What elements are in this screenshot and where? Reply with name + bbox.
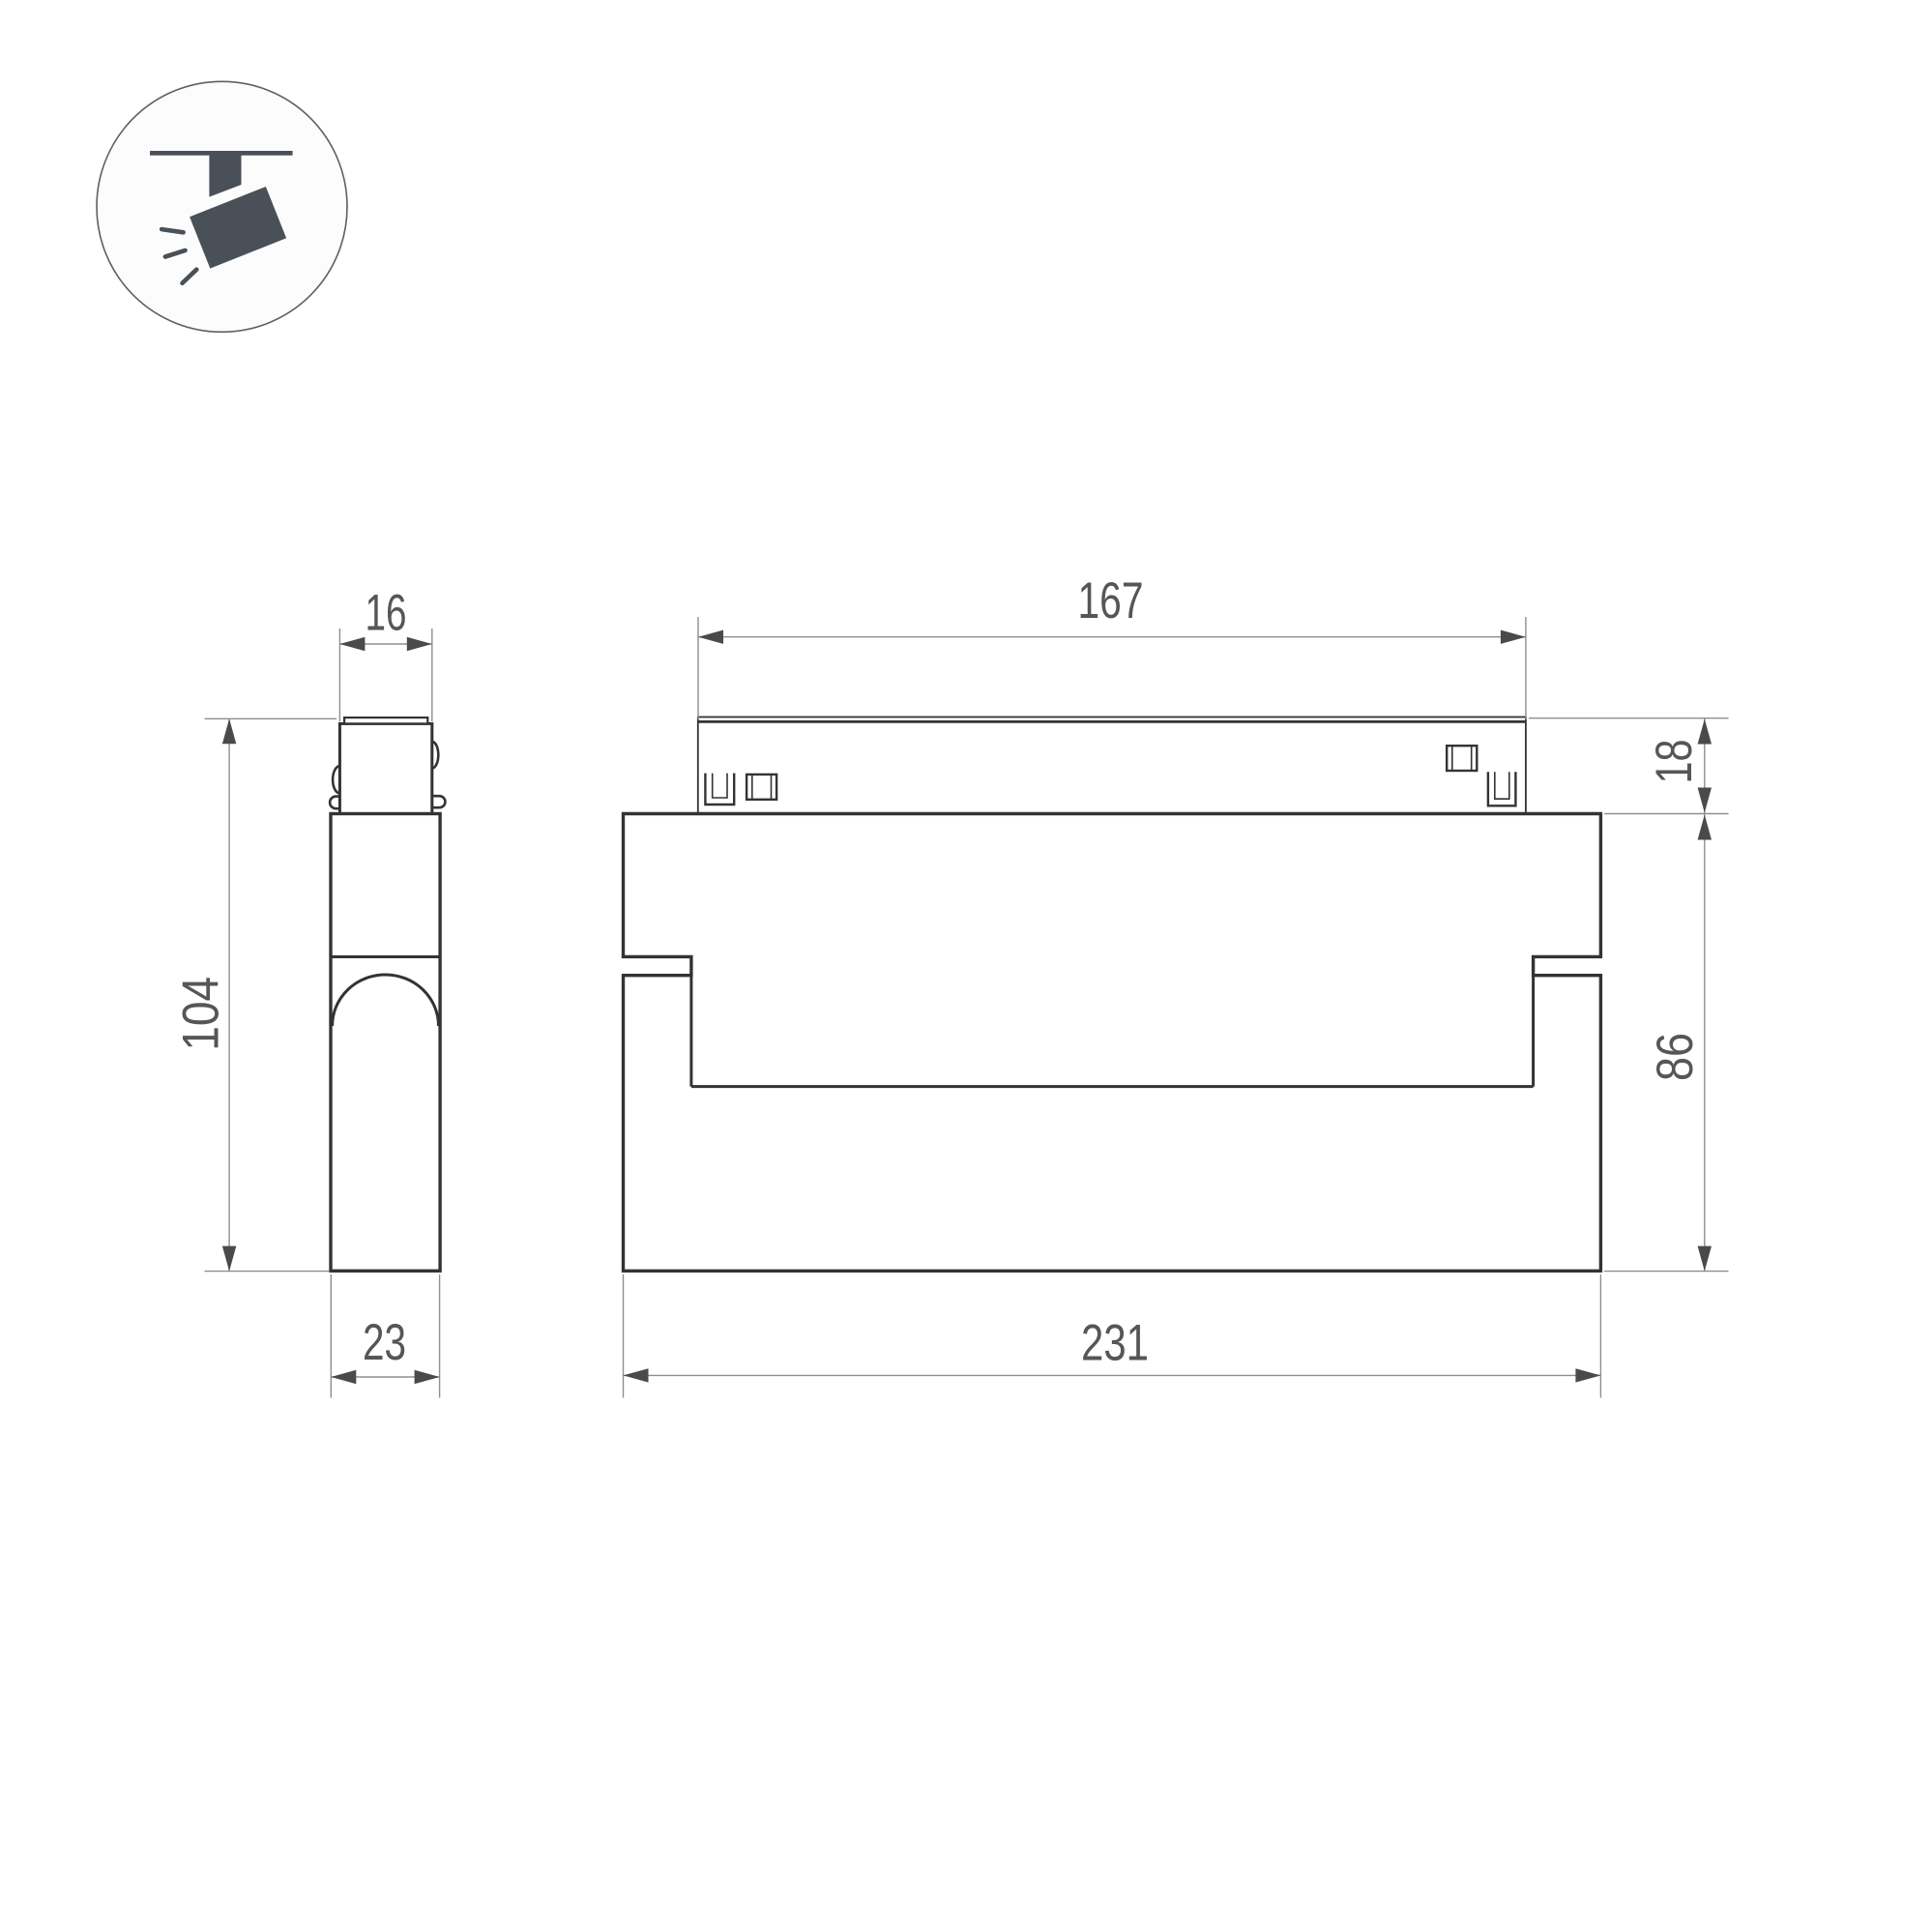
svg-text:231: 231: [1081, 1315, 1149, 1372]
svg-text:18: 18: [1646, 740, 1703, 784]
svg-text:16: 16: [366, 585, 407, 642]
svg-text:167: 167: [1078, 572, 1144, 629]
svg-text:104: 104: [173, 977, 230, 1051]
svg-text:86: 86: [1647, 1033, 1704, 1081]
svg-text:23: 23: [363, 1314, 406, 1371]
